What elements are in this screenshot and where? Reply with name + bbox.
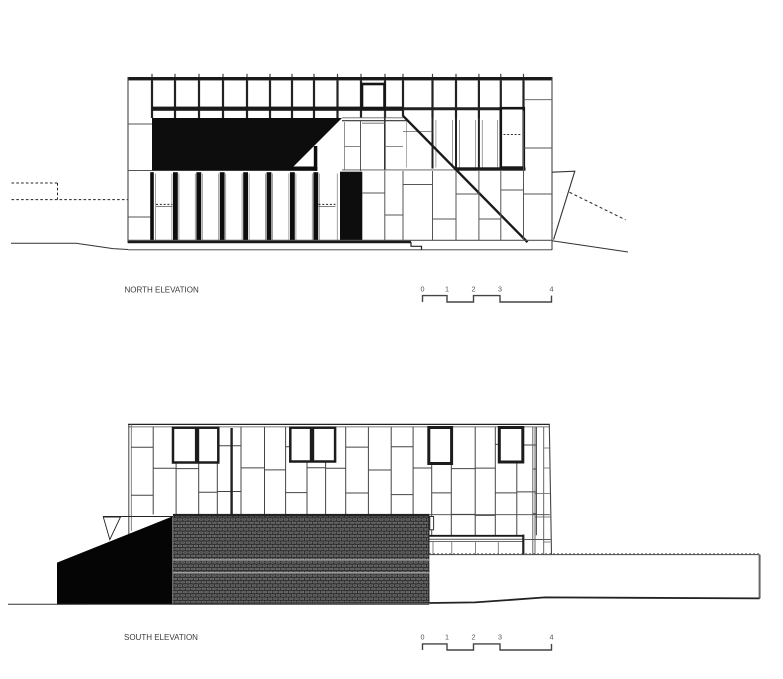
svg-text:1: 1: [445, 632, 449, 641]
svg-text:NORTH ELEVATION: NORTH ELEVATION: [125, 285, 199, 294]
svg-text:3: 3: [498, 284, 502, 293]
svg-text:4: 4: [550, 632, 554, 641]
svg-text:SOUTH ELEVATION: SOUTH ELEVATION: [124, 633, 198, 642]
svg-text:4: 4: [550, 284, 554, 293]
svg-text:2: 2: [472, 284, 476, 293]
svg-text:0: 0: [421, 632, 425, 641]
svg-text:1: 1: [445, 284, 449, 293]
svg-text:2: 2: [472, 632, 476, 641]
svg-text:0: 0: [421, 284, 425, 293]
svg-text:3: 3: [498, 632, 502, 641]
